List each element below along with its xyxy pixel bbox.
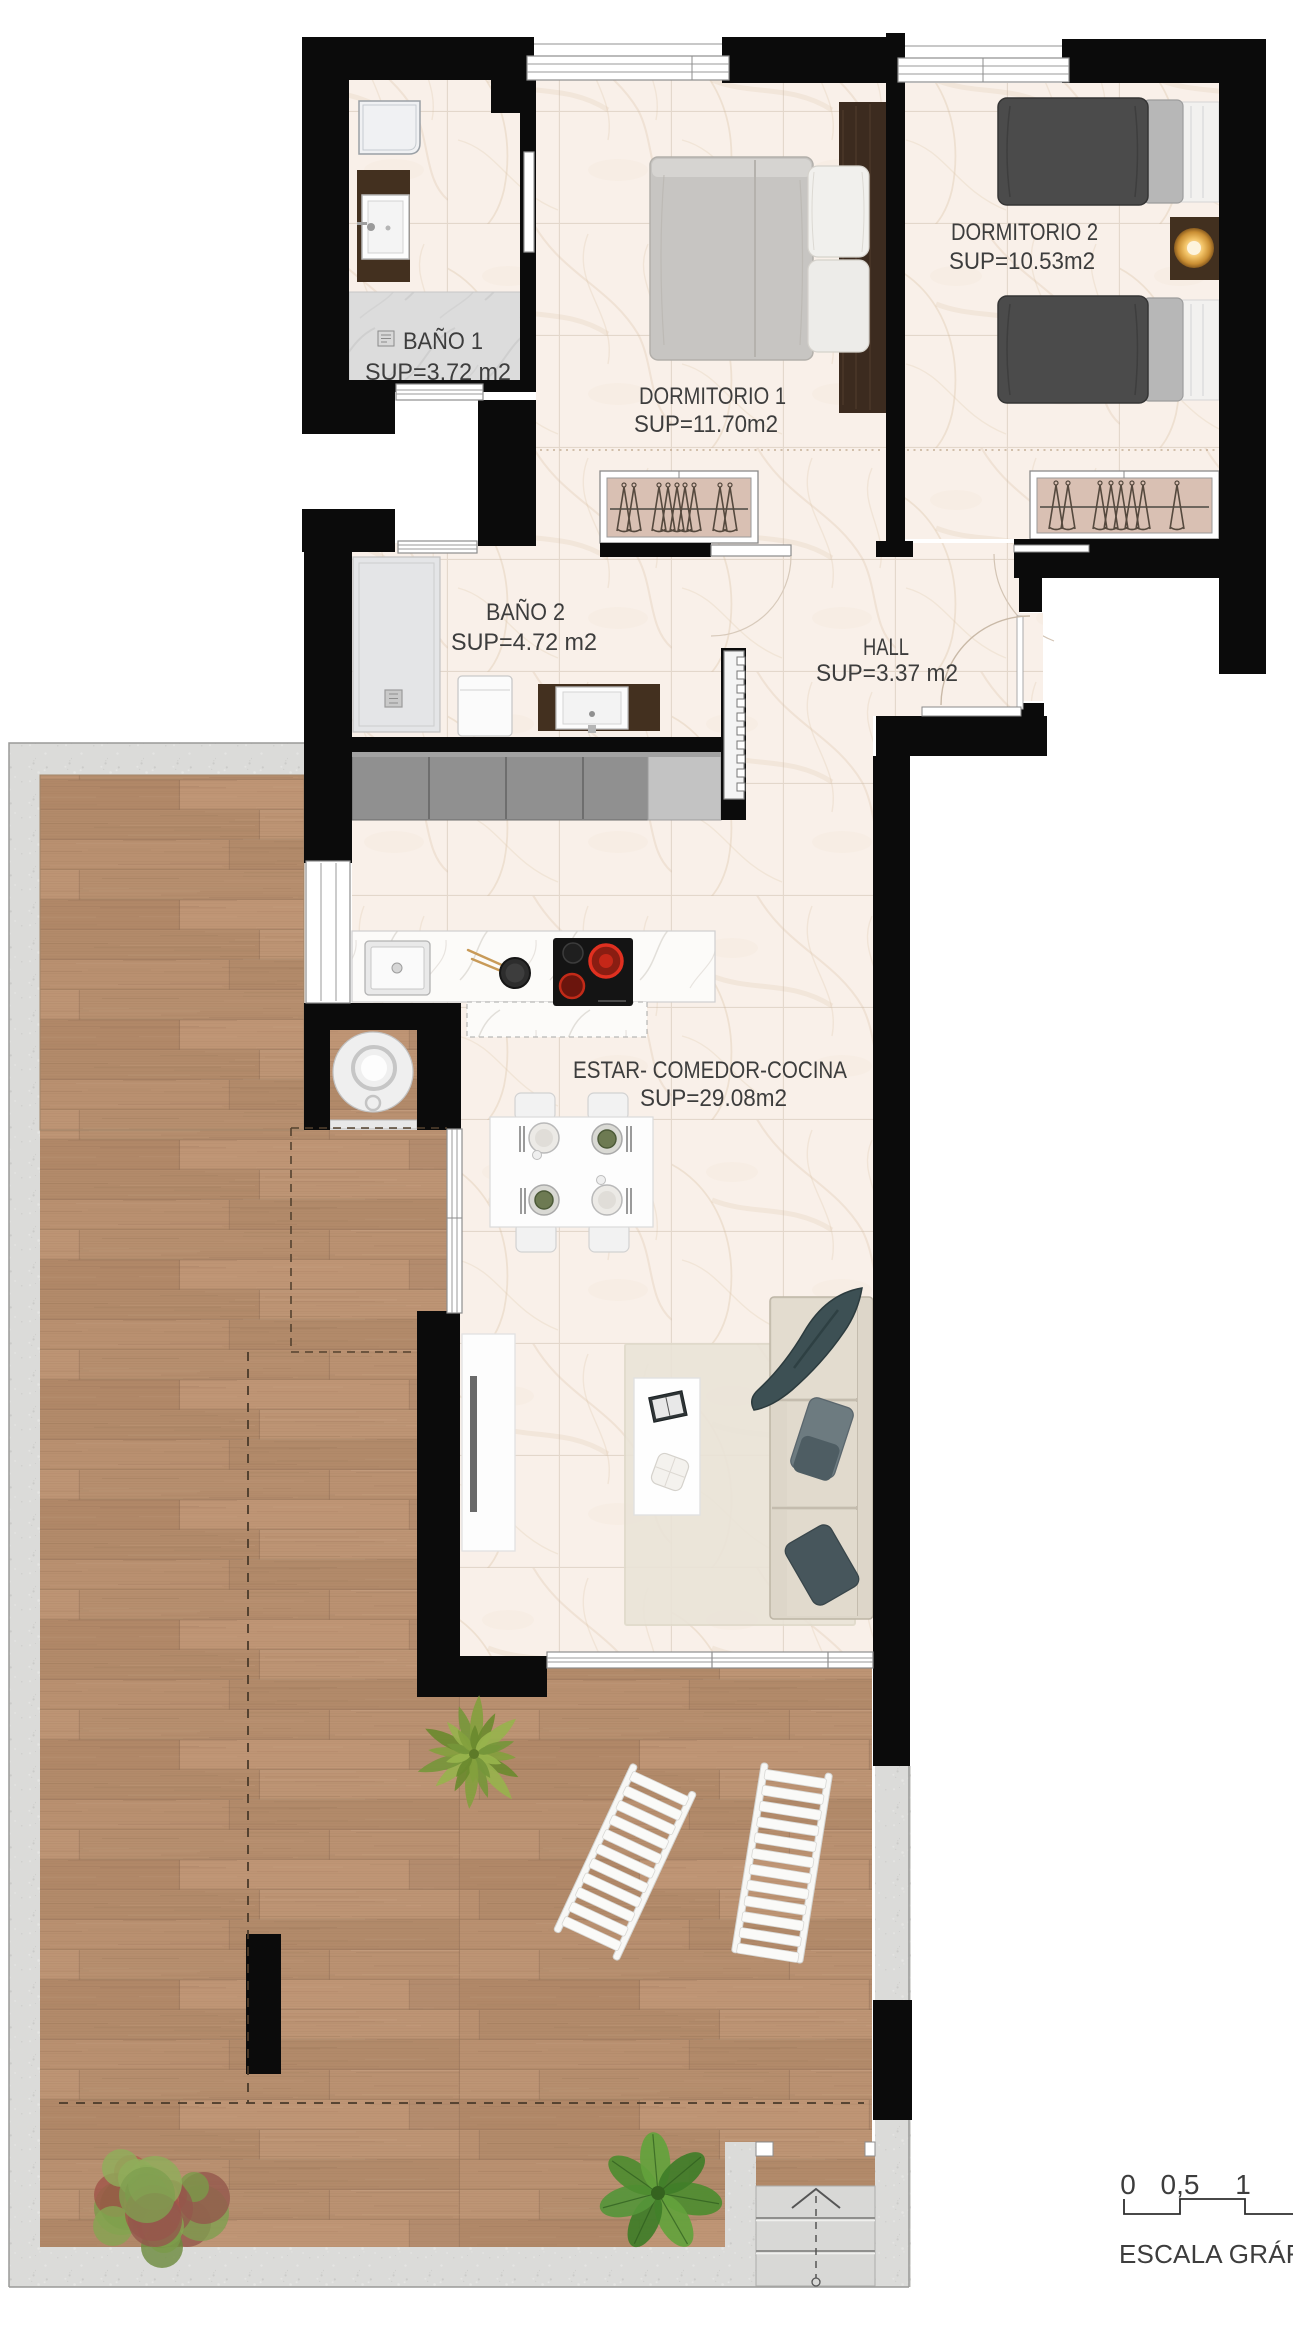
svg-text:SUP=3.37 m2: SUP=3.37 m2 (816, 660, 958, 687)
svg-text:SUP=10.53m2: SUP=10.53m2 (949, 248, 1095, 275)
svg-text:BAÑO 1: BAÑO 1 (403, 328, 483, 355)
svg-text:DORMITORIO 2: DORMITORIO 2 (951, 219, 1098, 246)
svg-text:ESTAR- COMEDOR-COCINA: ESTAR- COMEDOR-COCINA (573, 1057, 847, 1084)
svg-text:HALL: HALL (863, 634, 909, 661)
svg-text:SUP=29.08m2: SUP=29.08m2 (640, 1085, 787, 1112)
svg-text:1: 1 (1235, 2169, 1251, 2200)
svg-text:DORMITORIO 1: DORMITORIO 1 (639, 383, 786, 410)
svg-text:BAÑO 2: BAÑO 2 (486, 599, 565, 626)
svg-text:ESCALA GRÁFICA: ESCALA GRÁFICA (1119, 2239, 1293, 2269)
svg-text:SUP=4.72 m2: SUP=4.72 m2 (451, 629, 597, 656)
svg-text:0,5: 0,5 (1161, 2169, 1200, 2200)
svg-text:SUP=11.70m2: SUP=11.70m2 (634, 411, 778, 438)
svg-text:SUP=3.72 m2: SUP=3.72 m2 (365, 359, 511, 386)
svg-text:0: 0 (1120, 2169, 1136, 2200)
